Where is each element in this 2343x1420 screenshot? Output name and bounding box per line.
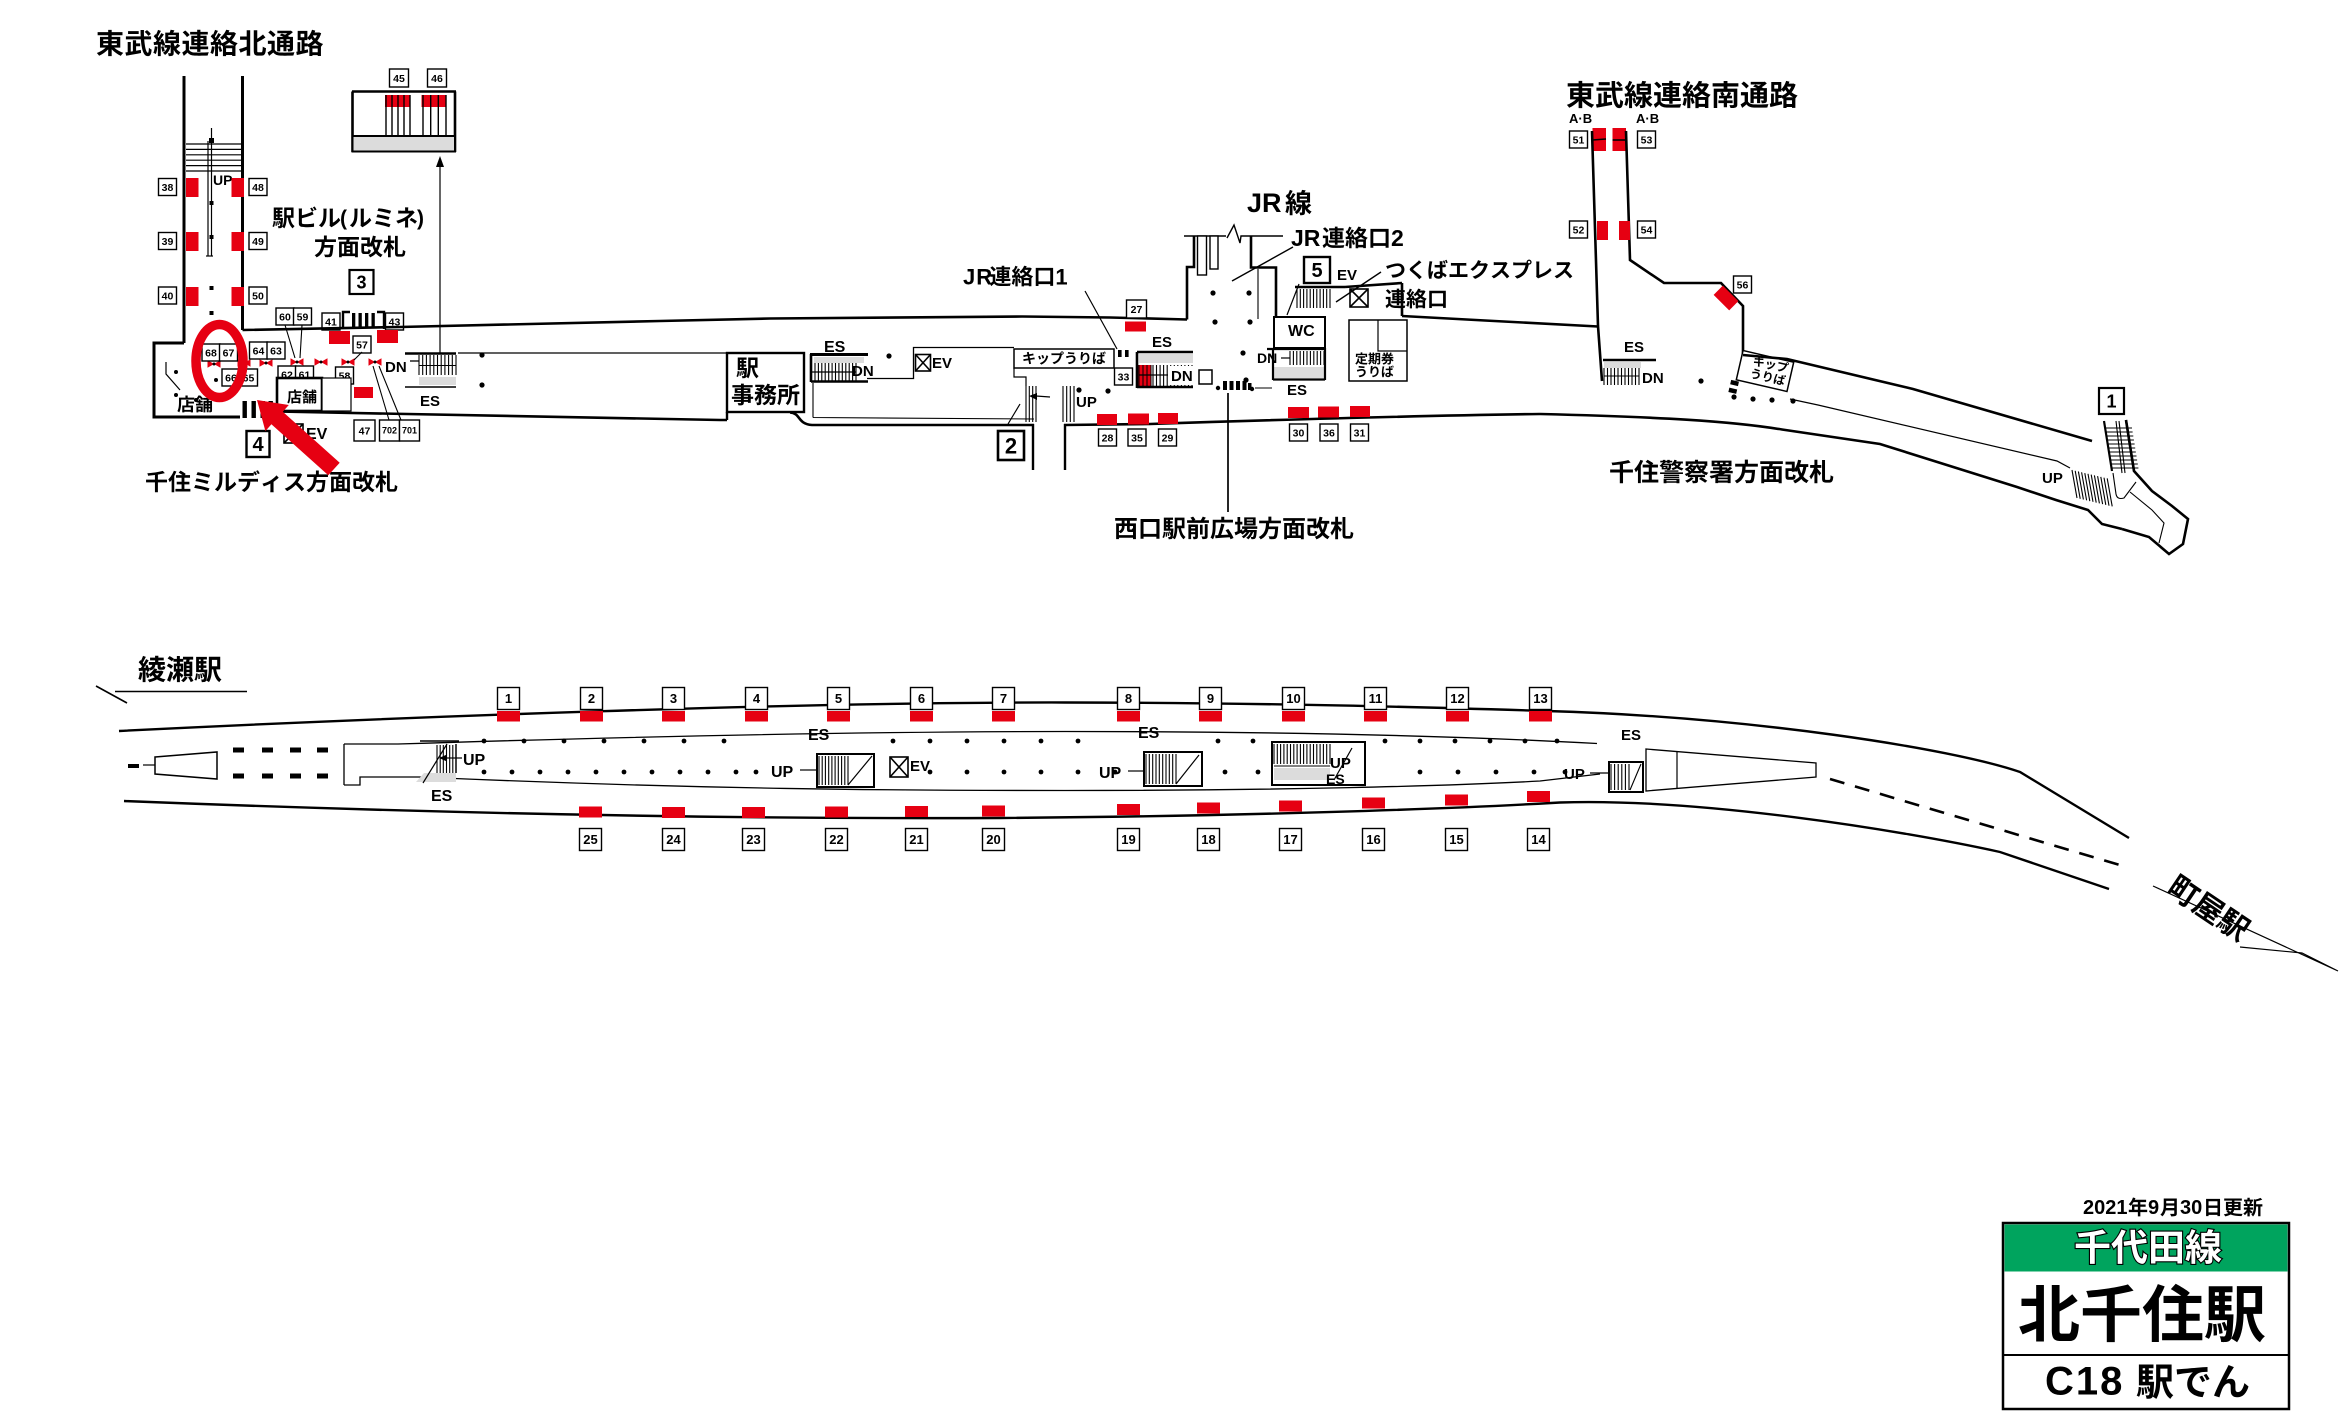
svg-text:54: 54: [1641, 224, 1653, 236]
svg-text:4: 4: [753, 691, 761, 706]
svg-text:31: 31: [1354, 427, 1366, 439]
svg-text:33: 33: [1118, 371, 1130, 383]
svg-text:701: 701: [402, 426, 417, 436]
svg-text:6: 6: [918, 691, 925, 706]
svg-text:UP: UP: [771, 764, 794, 781]
svg-text:A·B: A·B: [1636, 111, 1659, 126]
svg-text:20: 20: [986, 832, 1000, 847]
svg-text:19: 19: [1121, 832, 1135, 847]
svg-text:25: 25: [583, 832, 597, 847]
svg-text:50: 50: [252, 290, 264, 302]
svg-text:DN: DN: [852, 363, 874, 380]
svg-text:ES: ES: [1326, 771, 1345, 787]
svg-text:48: 48: [252, 182, 264, 194]
svg-text:10: 10: [1286, 691, 1300, 706]
svg-text:DN: DN: [1257, 350, 1277, 366]
svg-text:4: 4: [252, 434, 264, 456]
svg-text:47: 47: [359, 425, 371, 437]
svg-text:21: 21: [909, 832, 923, 847]
svg-text:18: 18: [1201, 832, 1215, 847]
svg-text:14: 14: [1531, 832, 1546, 847]
svg-text:57: 57: [356, 339, 368, 351]
svg-text:UP: UP: [1330, 755, 1351, 772]
svg-text:3: 3: [670, 691, 677, 706]
svg-text:28: 28: [1102, 432, 1114, 444]
svg-text:2: 2: [588, 691, 595, 706]
svg-text:JR: JR: [1291, 225, 1321, 251]
svg-text:60: 60: [279, 311, 291, 323]
svg-text:1: 1: [2106, 392, 2116, 412]
svg-text:49: 49: [252, 236, 264, 248]
svg-text:45: 45: [393, 73, 405, 85]
svg-text:EV: EV: [910, 758, 930, 775]
svg-text:30: 30: [2180, 1197, 2202, 1219]
svg-text:ES: ES: [1624, 339, 1644, 356]
svg-text:C18: C18: [2045, 1359, 2124, 1403]
svg-text:UP: UP: [2042, 470, 2063, 487]
svg-text:JR: JR: [1247, 188, 1282, 218]
svg-text:16: 16: [1366, 832, 1380, 847]
svg-text:2: 2: [1005, 433, 1017, 458]
svg-text:30: 30: [1293, 427, 1305, 439]
svg-text:9: 9: [2148, 1197, 2159, 1219]
svg-text:DN: DN: [385, 359, 407, 376]
svg-text:DN: DN: [1642, 370, 1664, 387]
svg-text:68: 68: [205, 347, 217, 359]
svg-text:R: R: [976, 264, 992, 289]
svg-text:UP: UP: [463, 752, 486, 769]
svg-text:41: 41: [325, 316, 337, 328]
svg-text:UP: UP: [1076, 394, 1097, 411]
svg-text:ES: ES: [1287, 382, 1307, 399]
svg-text:52: 52: [1573, 224, 1585, 236]
svg-text:67: 67: [223, 347, 235, 359]
svg-text:ES: ES: [420, 393, 440, 410]
svg-text:7: 7: [1000, 691, 1007, 706]
svg-text:3: 3: [356, 273, 366, 293]
svg-text:ES: ES: [1621, 727, 1641, 744]
svg-text:J: J: [963, 264, 975, 289]
svg-text:38: 38: [162, 182, 174, 194]
svg-text:ES: ES: [808, 727, 830, 744]
svg-text:51: 51: [1573, 134, 1585, 146]
svg-text:59: 59: [297, 311, 309, 323]
svg-text:WC: WC: [1288, 323, 1315, 340]
svg-text:5: 5: [835, 691, 842, 706]
svg-text:EV: EV: [932, 355, 952, 372]
svg-text:24: 24: [666, 832, 681, 847]
svg-text:15: 15: [1449, 832, 1463, 847]
svg-text:22: 22: [829, 832, 843, 847]
svg-text:53: 53: [1641, 134, 1653, 146]
svg-text:ES: ES: [431, 788, 453, 805]
svg-text:46: 46: [431, 73, 443, 85]
svg-text:ES: ES: [1138, 725, 1160, 742]
svg-text:1: 1: [1055, 264, 1067, 289]
svg-text:): ): [417, 207, 424, 230]
svg-text:UP: UP: [1564, 766, 1585, 783]
svg-text:ES: ES: [1152, 334, 1172, 351]
svg-text:9: 9: [1207, 691, 1214, 706]
svg-text:A·B: A·B: [1569, 111, 1592, 126]
svg-text:EV: EV: [1337, 267, 1357, 284]
svg-text:17: 17: [1283, 832, 1297, 847]
svg-text:702: 702: [382, 426, 397, 436]
svg-text:13: 13: [1533, 691, 1547, 706]
svg-text:11: 11: [1369, 691, 1383, 706]
svg-text:23: 23: [746, 832, 760, 847]
svg-text:1: 1: [505, 691, 512, 706]
svg-text:27: 27: [1131, 304, 1143, 316]
svg-text:29: 29: [1162, 432, 1174, 444]
svg-text:35: 35: [1131, 432, 1143, 444]
svg-text:5: 5: [1311, 260, 1322, 282]
svg-text:2: 2: [1391, 225, 1404, 251]
svg-text:8: 8: [1125, 691, 1132, 706]
svg-text:(: (: [340, 207, 347, 230]
svg-text:40: 40: [162, 290, 174, 302]
svg-text:UP: UP: [1099, 765, 1122, 782]
svg-text:2021: 2021: [2083, 1197, 2128, 1219]
svg-text:DN: DN: [1171, 368, 1193, 385]
svg-text:63: 63: [270, 345, 282, 357]
svg-text:UP: UP: [213, 172, 232, 188]
svg-text:64: 64: [253, 345, 265, 357]
svg-text:39: 39: [162, 236, 174, 248]
svg-text:56: 56: [1737, 279, 1749, 291]
svg-text:36: 36: [1323, 427, 1335, 439]
svg-text:12: 12: [1450, 691, 1464, 706]
